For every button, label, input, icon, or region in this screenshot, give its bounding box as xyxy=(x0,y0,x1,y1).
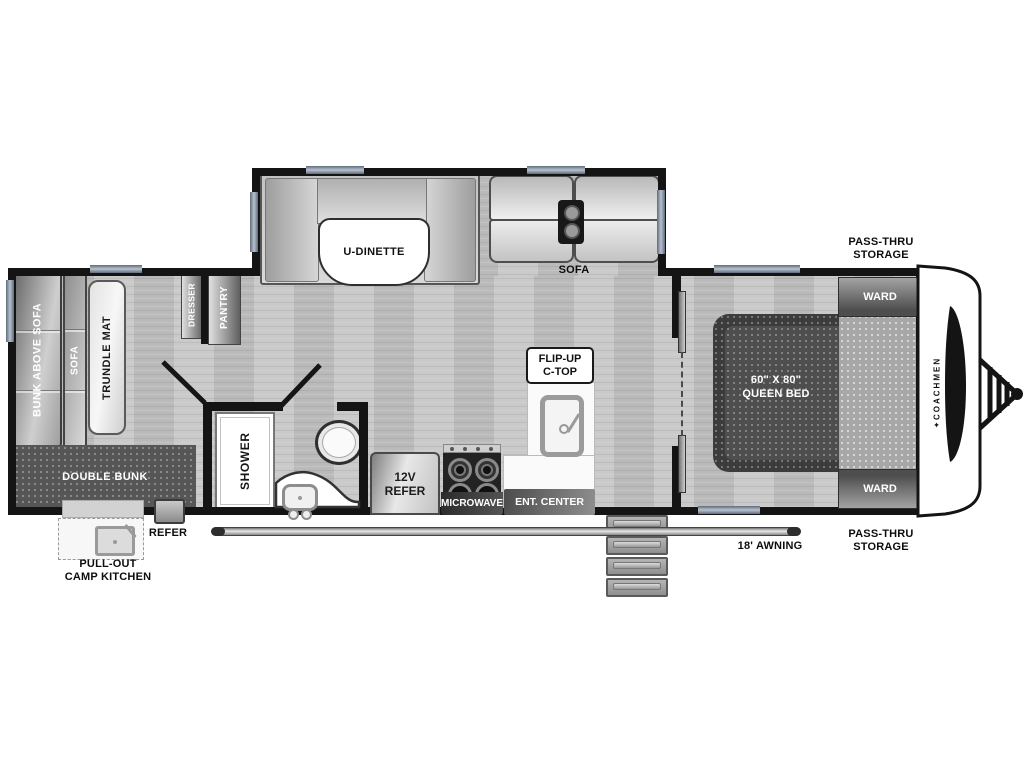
toilet-icon xyxy=(315,420,363,465)
double-bunk-label: DOUBLE BUNK xyxy=(62,471,148,483)
exterior-refer-box xyxy=(154,499,185,524)
ward-bottom-label: WARD xyxy=(863,483,897,495)
pass-thru-top-line1: PASS-THRU xyxy=(828,236,934,249)
ent-center-label: ENT. CENTER xyxy=(515,496,584,508)
queen-bed-label: 60" X 80" QUEEN BED xyxy=(713,373,839,401)
microwave-label: MICROWAVE xyxy=(441,498,503,509)
flip-up-ctop-label-box: FLIP-UP C-TOP xyxy=(526,347,594,384)
window xyxy=(657,190,665,254)
pantry: PANTRY xyxy=(208,271,241,345)
camp-kitchen-slide xyxy=(62,500,144,518)
window xyxy=(90,265,142,273)
bed-head-section xyxy=(839,314,923,472)
u-dinette-table: U-DINETTE xyxy=(318,218,430,286)
step xyxy=(606,578,668,597)
camp-kitchen-label: PULL-OUT CAMP KITCHEN xyxy=(48,558,168,583)
bath-wall-left xyxy=(203,402,212,508)
ward-bottom: WARD xyxy=(838,469,922,509)
bath-sink-icon xyxy=(282,484,318,511)
sink-faucet-icon xyxy=(566,413,580,433)
camp-kitchen-line2: CAMP KITCHEN xyxy=(48,571,168,584)
hitch-ball-icon xyxy=(1011,388,1023,400)
dresser: DRESSER xyxy=(181,272,202,339)
awning-bar xyxy=(212,527,800,536)
microwave-label-band: MICROWAVE xyxy=(441,492,503,515)
awning-end-cap xyxy=(787,527,801,536)
bath-faucet-icon xyxy=(288,509,299,520)
refer-12v: 12V REFER xyxy=(370,452,440,515)
dinette-bench-left xyxy=(265,178,319,282)
pass-thru-top-line2: STORAGE xyxy=(828,249,934,262)
stove-icon xyxy=(443,444,501,494)
refer-12v-line2: REFER xyxy=(385,484,426,498)
window xyxy=(6,280,14,342)
cupholder-icon xyxy=(564,223,580,239)
shower-label: SHOWER xyxy=(217,414,273,508)
sofa-seat-right xyxy=(574,219,660,263)
toilet-bowl xyxy=(322,427,356,458)
brand-mark: ✦ COACHMEN xyxy=(927,330,947,455)
trundle-mat-label: TRUNDLE MAT xyxy=(90,282,124,433)
flip-up-line1: FLIP-UP xyxy=(539,353,582,366)
pantry-label: PANTRY xyxy=(209,272,240,344)
bunk-above-sofa: BUNK ABOVE SOFA xyxy=(13,271,62,448)
flip-up-line2: C-TOP xyxy=(543,366,577,379)
pass-thru-bottom-line2: STORAGE xyxy=(828,541,934,554)
sofa-back-right xyxy=(574,175,660,221)
window xyxy=(527,166,585,174)
bedroom-door-dashed-line xyxy=(681,352,683,436)
sofa-console xyxy=(558,200,584,244)
rear-sofa-label: SOFA xyxy=(65,275,85,446)
queen-bed-size: 60" X 80" xyxy=(713,373,839,387)
stove-top xyxy=(443,453,501,494)
hitch-a-frame xyxy=(980,360,1014,428)
awning-end-cap xyxy=(211,527,225,536)
exterior-refer-label: REFER xyxy=(140,527,196,540)
dinette-bench-right xyxy=(424,178,476,282)
ward-top: WARD xyxy=(838,277,922,317)
ent-center-label-band: ENT. CENTER xyxy=(504,489,595,515)
dresser-pantry-divider-wall xyxy=(201,268,208,344)
brand-label: COACHMEN xyxy=(933,356,942,419)
shower: SHOWER xyxy=(215,412,275,510)
awning-label: 18' AWNING xyxy=(730,540,810,553)
brand-logo-icon: ✦ xyxy=(933,420,941,429)
refer-12v-line1: 12V xyxy=(394,470,415,484)
bath-faucet-icon xyxy=(301,509,312,520)
stove-knob-strip xyxy=(443,444,501,453)
dresser-label: DRESSER xyxy=(182,273,201,338)
nose-window xyxy=(945,306,966,462)
bunk-above-sofa-label: BUNK ABOVE SOFA xyxy=(15,273,60,446)
pass-thru-bottom-line1: PASS-THRU xyxy=(828,528,934,541)
camp-kitchen-griddle-icon xyxy=(95,526,135,556)
sofa-slideout-label: SOFA xyxy=(546,264,602,277)
window xyxy=(698,506,760,514)
rear-sofa: SOFA xyxy=(63,273,87,448)
window xyxy=(250,192,258,252)
rv-floorplan: BUNK ABOVE SOFA SOFA TRUNDLE MAT DOUBLE … xyxy=(0,0,1024,768)
u-dinette-label: U-DINETTE xyxy=(343,246,404,258)
step xyxy=(606,557,668,576)
queen-bed-name: QUEEN BED xyxy=(713,387,839,401)
pass-thru-bottom-label: PASS-THRU STORAGE xyxy=(828,528,934,553)
trundle-mat: TRUNDLE MAT xyxy=(88,280,126,435)
bedroom-slider-panel-top xyxy=(678,291,686,353)
window xyxy=(714,265,800,273)
step xyxy=(606,536,668,555)
window xyxy=(306,166,364,174)
bath-sink-drain xyxy=(298,496,302,500)
bath-wall-right xyxy=(359,402,368,508)
bath-wall-top-left xyxy=(203,402,283,411)
bedroom-slider-panel-bottom xyxy=(678,435,686,493)
kitchen-sink-icon xyxy=(540,395,584,457)
camp-kitchen-line1: PULL-OUT xyxy=(48,558,168,571)
cupholder-icon xyxy=(564,205,580,221)
ward-top-label: WARD xyxy=(863,291,897,303)
pass-thru-top-label: PASS-THRU STORAGE xyxy=(828,236,934,261)
griddle-dot xyxy=(113,540,117,544)
